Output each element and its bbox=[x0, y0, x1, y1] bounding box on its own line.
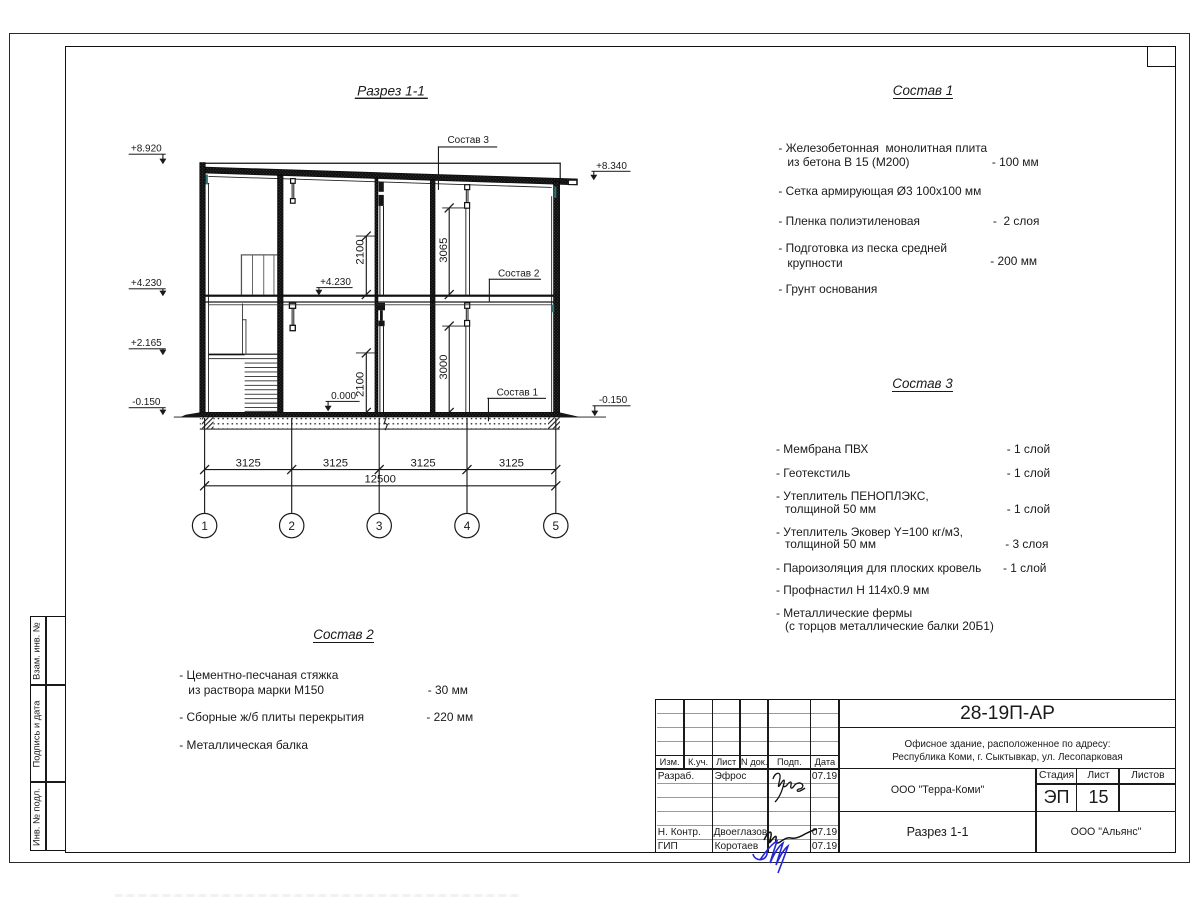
svg-text:+8.920: +8.920 bbox=[131, 144, 162, 155]
svg-text:0.000: 0.000 bbox=[331, 391, 356, 402]
svg-text:3125: 3125 bbox=[236, 457, 261, 469]
svg-text:-0.150: -0.150 bbox=[599, 395, 628, 406]
svg-text:2100: 2100 bbox=[355, 239, 367, 264]
svg-text:1: 1 bbox=[201, 519, 208, 533]
svg-text:Состав 2: Состав 2 bbox=[498, 268, 540, 279]
svg-text:3125: 3125 bbox=[323, 457, 348, 469]
svg-text:5: 5 bbox=[553, 519, 560, 533]
svg-text:+4.230: +4.230 bbox=[320, 277, 351, 288]
svg-text:-0.150: -0.150 bbox=[132, 397, 161, 408]
svg-text:+2.165: +2.165 bbox=[131, 338, 162, 349]
svg-text:3125: 3125 bbox=[499, 457, 524, 469]
svg-text:2100: 2100 bbox=[355, 372, 367, 397]
svg-text:3065: 3065 bbox=[438, 238, 450, 263]
svg-text:+8.340: +8.340 bbox=[596, 161, 627, 172]
svg-text:+4.230: +4.230 bbox=[131, 278, 162, 289]
svg-text:12500: 12500 bbox=[364, 474, 395, 486]
svg-text:3: 3 bbox=[376, 519, 383, 533]
svg-text:Состав 3: Состав 3 bbox=[447, 135, 489, 146]
svg-text:Разрез 1-1: Разрез 1-1 bbox=[357, 84, 425, 99]
svg-text:Состав 1: Состав 1 bbox=[497, 387, 539, 398]
svg-text:2: 2 bbox=[288, 519, 295, 533]
svg-text:3125: 3125 bbox=[411, 457, 436, 469]
svg-text:4: 4 bbox=[464, 519, 471, 533]
svg-text:3000: 3000 bbox=[438, 355, 450, 380]
